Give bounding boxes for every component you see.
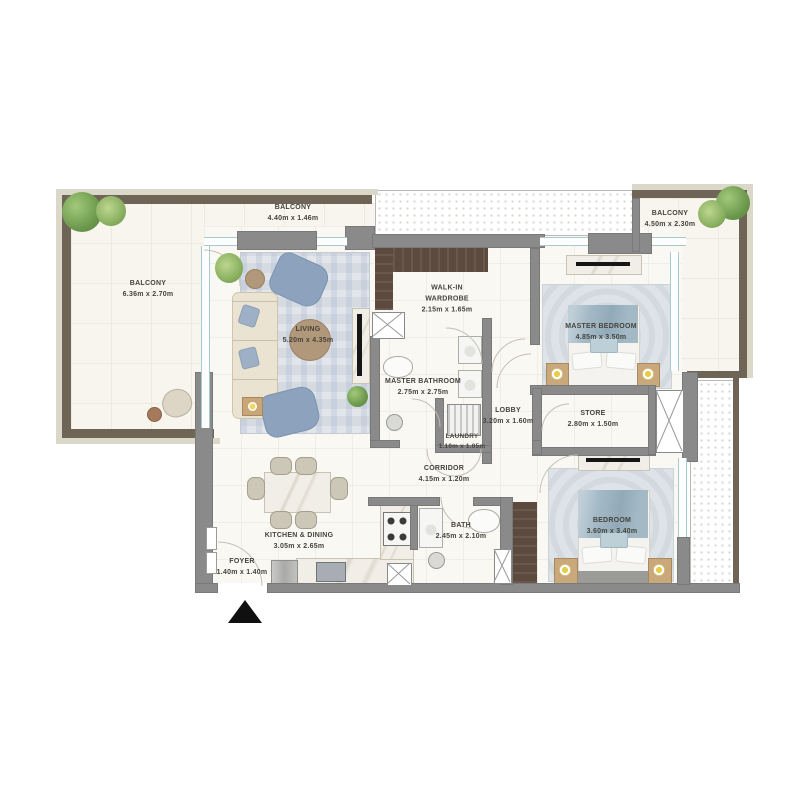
window [317, 237, 347, 246]
tv-icon [357, 314, 362, 376]
room-dims: 1.10m x 1.05m [439, 442, 486, 452]
wall-segment [345, 226, 375, 250]
window [204, 237, 237, 246]
dining-chair [270, 457, 292, 475]
room-name: BEDROOM [587, 516, 638, 527]
shaft-icon [656, 390, 684, 453]
room-label-laundry: LAUNDRY 1.10m x 1.05m [439, 432, 486, 452]
lamp-icon [551, 368, 563, 380]
room-label-corridor: CORRIDOR 4.15m x 1.20m [419, 464, 470, 486]
room-dims: 4.40m x 1.46m [268, 214, 319, 225]
wall-segment [370, 336, 380, 446]
window [670, 252, 679, 371]
plant-icon [215, 253, 243, 283]
room-label-foyer: FOYER 1.40m x 1.40m [217, 557, 268, 579]
walkin-wardrobe-cabinet [375, 248, 393, 310]
room-label-living: LIVING 5.20m x 4.35m [283, 325, 334, 347]
wall-segment [530, 385, 656, 395]
room-name: BALCONY [645, 209, 696, 220]
room-name: MASTER BATHROOM [385, 377, 461, 388]
plant-icon [347, 386, 368, 407]
dining-chair [295, 511, 317, 529]
room-label-balcony-left: BALCONY 6.36m x 2.70m [123, 279, 174, 301]
sink-basin-icon [458, 370, 482, 398]
bed-headboard [578, 571, 648, 583]
room-label-master-bedroom: MASTER BEDROOM 4.85m x 3.50m [565, 322, 637, 344]
entrance-marker-icon [228, 600, 262, 623]
void-hatch-top [375, 190, 634, 236]
bed-pillow [605, 351, 636, 371]
tv-icon [586, 458, 640, 462]
room-dims: 5.20m x 4.35m [283, 336, 334, 347]
room-label-bath: BATH 2.45m x 2.10m [436, 521, 487, 543]
lamp-icon [653, 564, 665, 576]
wall-segment [195, 583, 218, 593]
room-name: WALK-IN WARDROBE [418, 284, 476, 306]
room-name: BALCONY [268, 203, 319, 214]
stove-icon [383, 512, 411, 546]
room-name: FOYER [217, 557, 268, 568]
floor-lamp [242, 397, 263, 416]
side-table [147, 407, 162, 422]
floor-plan: BALCONY 6.36m x 2.70m BALCONY 4.40m x 1.… [0, 0, 800, 800]
wall-segment [372, 234, 545, 248]
room-dims: 1.40m x 1.40m [217, 568, 268, 579]
wall-segment [237, 231, 317, 250]
window [201, 246, 210, 428]
window [652, 237, 686, 246]
wall-segment [532, 440, 542, 455]
wall-segment [677, 537, 690, 585]
sink-basin-icon [458, 336, 482, 364]
room-name: MASTER BEDROOM [565, 322, 637, 333]
room-label-balcony-right: BALCONY 4.50m x 2.30m [645, 209, 696, 231]
wall-segment [533, 447, 656, 456]
wall-segment [368, 497, 440, 506]
bedroom-closet [512, 502, 537, 583]
wall-segment [588, 233, 652, 254]
bed-pillow [571, 350, 603, 370]
shower-icon [428, 552, 445, 569]
room-dims: 2.80m x 1.50m [568, 420, 619, 431]
wall-segment [682, 372, 698, 462]
room-label-store: STORE 2.80m x 1.50m [568, 409, 619, 431]
room-name: LIVING [283, 325, 334, 336]
side-table [245, 269, 265, 289]
room-label-bedroom: BEDROOM 3.60m x 3.40m [587, 516, 638, 538]
plant-icon [698, 200, 726, 228]
shower-icon [386, 414, 403, 431]
wall-segment [530, 248, 540, 345]
room-label-balcony-top: BALCONY 4.40m x 1.46m [268, 203, 319, 225]
room-name: LAUNDRY [439, 432, 486, 442]
exterior-band [747, 184, 753, 378]
door-frame [206, 552, 217, 574]
shaft-icon [387, 563, 412, 586]
wall-segment [648, 385, 656, 455]
exterior-wall [733, 378, 739, 589]
room-dims: 2.45m x 2.10m [436, 532, 487, 543]
plant-icon [96, 196, 126, 226]
room-name: BALCONY [123, 279, 174, 290]
shaft-icon [372, 312, 405, 339]
window [540, 237, 588, 246]
exterior-wall [62, 429, 214, 438]
tv-icon [576, 262, 630, 266]
room-dims: 4.50m x 2.30m [645, 220, 696, 231]
window [678, 458, 687, 537]
wall-segment [632, 198, 640, 252]
room-dims: 4.85m x 3.50m [565, 333, 637, 344]
dining-table [264, 472, 331, 513]
lamp-icon [559, 564, 571, 576]
room-name: KITCHEN & DINING [265, 531, 334, 542]
room-label-lobby: LOBBY 3.20m x 1.60m [483, 406, 534, 428]
room-label-walkin-wardrobe: WALK-IN WARDROBE 2.15m x 1.65m [418, 284, 476, 317]
room-dims: 3.20m x 1.60m [483, 417, 534, 428]
room-dims: 3.05m x 2.65m [265, 542, 334, 553]
room-dims: 6.36m x 2.70m [123, 290, 174, 301]
room-name: CORRIDOR [419, 464, 470, 475]
toilet-icon [383, 356, 413, 378]
shaft-icon [494, 549, 512, 584]
room-dims: 3.60m x 3.40m [587, 527, 638, 538]
wall-segment [410, 505, 418, 550]
wall-segment [370, 440, 400, 448]
dining-chair [247, 477, 265, 500]
kitchen-sink [316, 562, 346, 582]
room-name: BATH [436, 521, 487, 532]
dining-chair [270, 511, 292, 529]
room-dims: 2.75m x 2.75m [385, 388, 461, 399]
lamp-icon [642, 368, 654, 380]
room-dims: 2.15m x 1.65m [418, 305, 476, 316]
room-label-kitchen-dining: KITCHEN & DINING 3.05m x 2.65m [265, 531, 334, 553]
room-label-master-bathroom: MASTER BATHROOM 2.75m x 2.75m [385, 377, 461, 399]
dining-chair [295, 457, 317, 475]
dining-chair [330, 477, 348, 500]
exterior-wall [62, 195, 71, 438]
room-name: STORE [568, 409, 619, 420]
room-dims: 4.15m x 1.20m [419, 475, 470, 486]
door-frame [206, 527, 217, 550]
room-name: LOBBY [483, 406, 534, 417]
